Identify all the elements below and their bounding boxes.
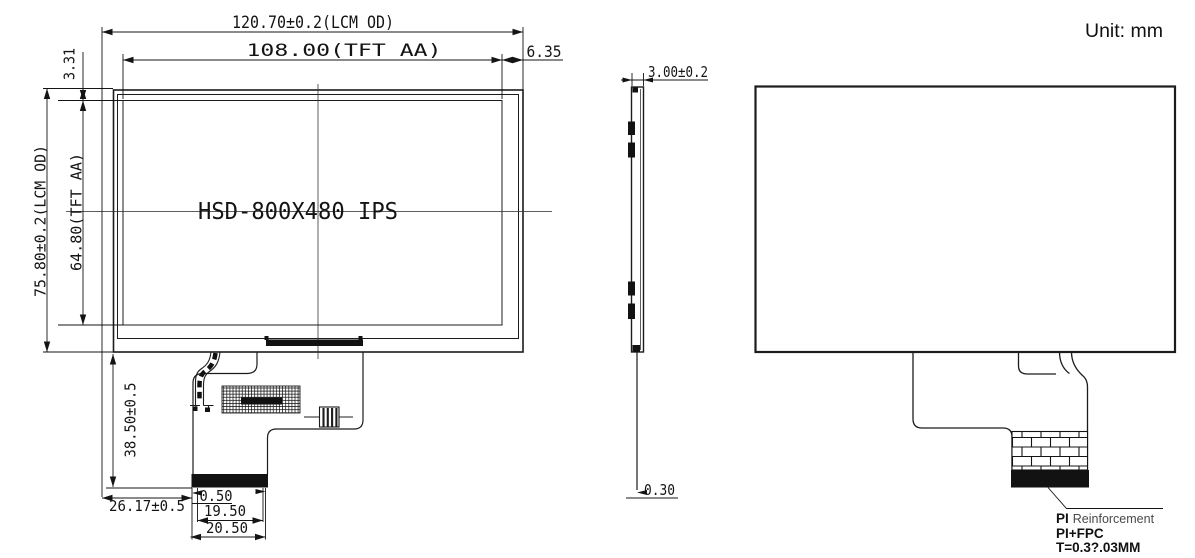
bar-end-nub-left	[265, 336, 269, 340]
note-pi-reinforcement: PIReinforcement	[1056, 511, 1155, 526]
front-fpc-bonding-bar	[266, 340, 363, 347]
dim-text-right-margin: 6.35	[527, 42, 562, 61]
side-extension-lines	[632, 73, 644, 86]
model-label: HSD-800X480 IPS	[198, 199, 398, 225]
front-dimensions	[43, 27, 563, 540]
back-view	[756, 87, 1176, 509]
side-bottom-cap	[633, 345, 641, 352]
fpc-fold-symbol	[190, 352, 220, 412]
note-leader-line	[1048, 488, 1163, 509]
side-top-cap	[633, 88, 639, 93]
dim-text-aa-height: 64.80(TFT AA)	[68, 153, 86, 271]
dim-text-lcm-width: 120.70±0.2(LCM OD)	[232, 13, 394, 32]
bar-end-nub-right	[359, 336, 363, 340]
back-module-outline	[756, 87, 1176, 353]
unit-label: Unit: mm	[1085, 20, 1163, 42]
dim-text-fpc-length: 38.50±0.5	[122, 383, 140, 458]
note-pi-bold: PI	[1056, 511, 1069, 526]
note-reinforcement: Reinforcement	[1073, 512, 1155, 526]
fpc-stiffener-slot	[241, 398, 282, 405]
back-fpc-outline-left	[913, 352, 1012, 470]
dim-text-thickness: 3.00±0.2	[648, 63, 708, 81]
back-fpc-tongue	[1019, 352, 1057, 374]
note-fpc-thickness: T=0.3?.03MM	[1056, 540, 1140, 555]
back-pi-reinforcement-hatch	[1012, 432, 1088, 471]
note-pi-fpc: PI+FPC	[1056, 526, 1104, 541]
back-fpc-contact-band	[1011, 470, 1089, 488]
fpc-component-symbol	[304, 407, 353, 427]
dim-text-fpc-thickness: 0.30	[644, 481, 675, 499]
extension-lines	[43, 27, 523, 540]
arrow-contact-right	[256, 489, 266, 494]
dim-text-contact-width: 19.50	[204, 502, 246, 520]
drawing-svg: 120.70±0.2(LCM OD) 108.00(TFT AA) 6.35 3…	[0, 0, 1195, 558]
side-view	[621, 73, 708, 498]
dim-text-top-margin: 3.31	[61, 48, 79, 80]
dim-text-fpc-end-width: 20.50	[206, 519, 248, 537]
arrow-thickness-left	[623, 78, 633, 83]
front-fpc-contact-band	[192, 474, 269, 488]
back-fpc-fold-line-1	[1060, 352, 1070, 374]
dim-text-lcm-height: 75.80±0.2(LCM OD)	[32, 145, 50, 297]
dim-text-aa-width: 108.00(TFT AA)	[247, 41, 442, 60]
dim-text-fpc-offset: 26.17±0.5	[109, 497, 185, 515]
lcd-module-drawing: 120.70±0.2(LCM OD) 108.00(TFT AA) 6.35 3…	[0, 0, 1195, 558]
